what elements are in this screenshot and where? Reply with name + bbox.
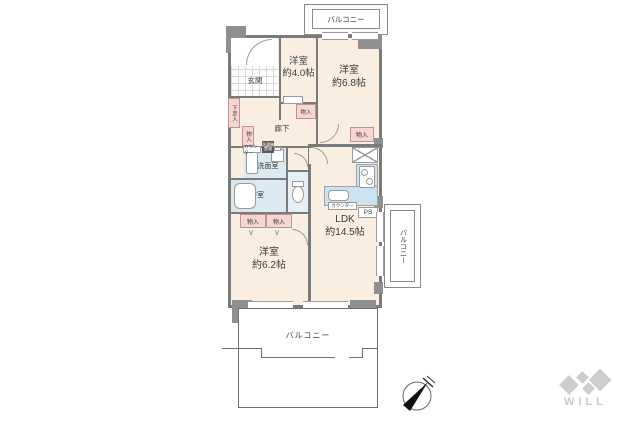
kitchen-counter-label: カウンター bbox=[328, 202, 357, 210]
floor-plan: バルコニー 玄関 下足入 物入 物入 物入 物入 bbox=[0, 0, 640, 427]
room-6-2-size: 約6.2帖 bbox=[240, 259, 298, 272]
balcony-step-line bbox=[261, 357, 335, 358]
compass-icon bbox=[400, 374, 444, 416]
balcony-bottom-outline bbox=[238, 308, 378, 408]
room-4-0-label: 洋室 約4.0帖 bbox=[276, 56, 321, 81]
balcony-step-line bbox=[222, 348, 262, 349]
closet-label: 物入 bbox=[273, 217, 285, 226]
balcony-step-line bbox=[362, 348, 378, 349]
closet-label: 物入 bbox=[300, 108, 311, 116]
room-6-8-name: 洋室 bbox=[320, 64, 378, 77]
counter-tiny-text: カウンター bbox=[244, 144, 260, 156]
closet-label: 物入 bbox=[244, 131, 252, 142]
washer-faucet bbox=[274, 147, 281, 151]
wall-block bbox=[374, 282, 383, 294]
shoe-closet-label: 下足入 bbox=[230, 105, 238, 122]
wall bbox=[316, 37, 318, 144]
window bbox=[376, 246, 384, 276]
balcony-bottom-label: バルコニー bbox=[268, 331, 348, 341]
washer-place-label: 洗濯機 置場 bbox=[262, 141, 274, 153]
logo-text: WILL bbox=[564, 396, 607, 408]
closet: 物入 bbox=[296, 104, 316, 119]
kitchen-sink bbox=[328, 190, 349, 201]
room-6-2-name: 洋室 bbox=[240, 246, 298, 259]
stove-burner bbox=[361, 169, 368, 176]
closet: 物入 bbox=[240, 214, 266, 228]
closet-fold-mark: ∨ bbox=[274, 229, 280, 237]
room-4-0-size: 約4.0帖 bbox=[276, 68, 321, 80]
closet-label: 物入 bbox=[247, 217, 259, 226]
ps-label: PS bbox=[364, 209, 373, 216]
wall bbox=[308, 144, 311, 308]
closet: 物入 bbox=[266, 214, 292, 228]
shoe-closet: 下足入 bbox=[228, 98, 240, 128]
balcony-step-line bbox=[362, 348, 363, 358]
window bbox=[322, 32, 348, 40]
door-leaf bbox=[283, 96, 303, 104]
stove-burner bbox=[366, 178, 373, 185]
bathtub bbox=[234, 183, 256, 209]
toilet-bowl bbox=[292, 186, 304, 203]
balcony-top-label: バルコニー bbox=[313, 10, 379, 28]
room-6-8-size: 約6.8帖 bbox=[320, 77, 378, 90]
fridge-space bbox=[352, 147, 378, 163]
closet: 物入 bbox=[350, 127, 374, 142]
room-4-0-name: 洋室 bbox=[276, 56, 321, 68]
window bbox=[352, 32, 378, 40]
balcony-top: バルコニー bbox=[312, 9, 380, 29]
room-6-2-label: 洋室 約6.2帖 bbox=[240, 246, 298, 272]
ldk-size: 約14.5帖 bbox=[314, 226, 376, 239]
room-6-8-label: 洋室 約6.8帖 bbox=[320, 64, 378, 90]
balcony-step-line bbox=[349, 357, 363, 358]
washer-place-line2: 置場 bbox=[264, 147, 272, 151]
genkan-label: 玄関 bbox=[240, 76, 270, 86]
closet-label: 物入 bbox=[356, 130, 368, 139]
balcony-right: バルコニー bbox=[390, 210, 415, 282]
kitchen-counter-text: カウンター bbox=[331, 203, 354, 209]
counter-tiny-label: カウンター bbox=[243, 146, 261, 153]
corridor-label: 廊下 bbox=[262, 124, 302, 134]
ps-box: PS bbox=[358, 207, 378, 218]
balcony-right-label: バルコニー bbox=[391, 211, 414, 281]
closet-fold-mark: ∨ bbox=[248, 229, 254, 237]
window bbox=[376, 212, 384, 242]
